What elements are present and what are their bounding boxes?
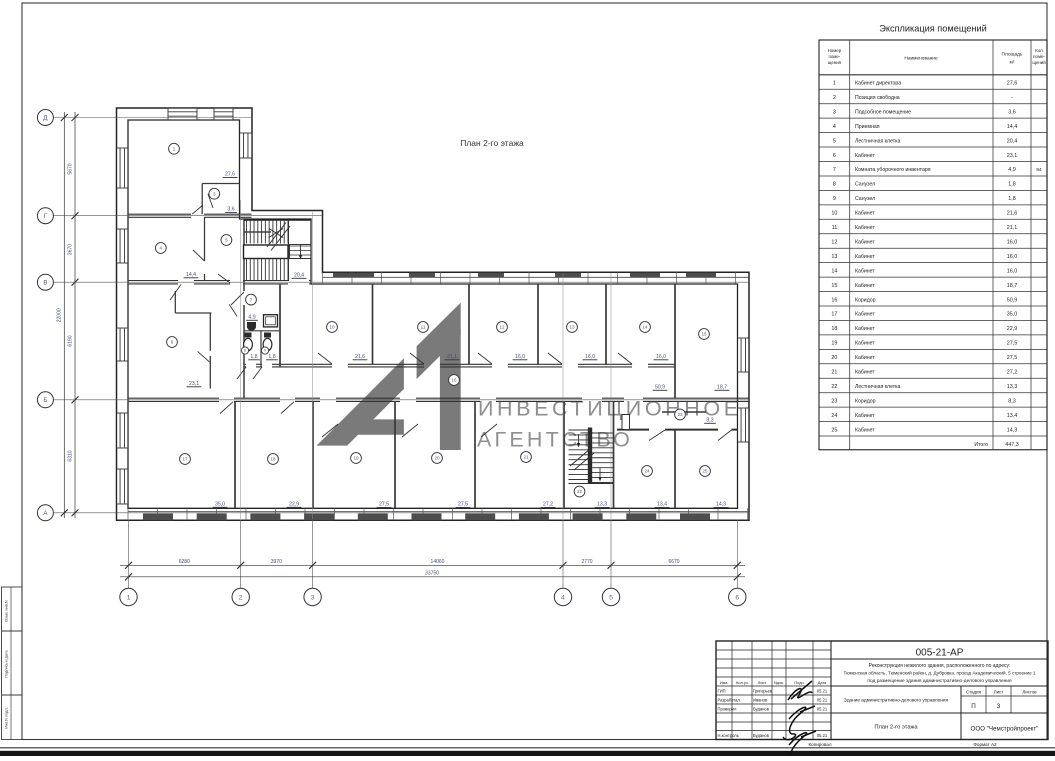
svg-text:Кол.уч: Кол.уч [736,680,748,685]
svg-text:1: 1 [833,81,836,87]
svg-text:3: 3 [833,109,836,115]
svg-text:447,3: 447,3 [1005,442,1019,448]
svg-text:20,4: 20,4 [1007,138,1018,144]
svg-text:Стадия: Стадия [966,689,982,694]
svg-text:3,6: 3,6 [227,207,234,213]
svg-text:13,3: 13,3 [597,502,607,508]
svg-text:6280: 6280 [179,559,190,565]
svg-text:Подп.: Подп. [794,680,804,685]
svg-text:Санузел: Санузел [855,196,875,202]
svg-text:05.21: 05.21 [817,707,828,712]
svg-text:84: 84 [1036,167,1042,173]
svg-text:14060: 14060 [431,559,445,565]
svg-text:12: 12 [831,239,837,245]
svg-text:14: 14 [831,268,837,274]
svg-text:9: 9 [264,349,266,353]
svg-text:6310: 6310 [67,450,73,461]
svg-text:Коридор: Коридор [855,398,876,404]
svg-text:Разработал: Разработал [718,698,741,703]
svg-text:Н.контроль: Н.контроль [718,733,739,738]
svg-text:Формат А2: Формат А2 [973,742,997,747]
svg-text:Санузел: Санузел [855,182,875,188]
svg-text:Изм.: Изм. [720,680,728,685]
svg-text:Наименование: Наименование [904,56,938,62]
svg-text:Копировал: Копировал [808,742,831,747]
svg-text:Кабинет: Кабинет [855,153,875,159]
svg-text:Позиция свободна: Позиция свободна [855,95,900,101]
svg-text:16,0: 16,0 [656,354,666,360]
svg-text:005-21-АР: 005-21-АР [916,648,964,659]
svg-text:35,0: 35,0 [1007,312,1018,318]
svg-text:19: 19 [831,341,837,347]
svg-text:Кол: Кол [1035,48,1043,53]
svg-text:6: 6 [833,153,836,159]
svg-text:Тюменская область, Тюменский р: Тюменская область, Тюменский район, д. Д… [843,670,1035,676]
svg-text:19: 19 [353,456,359,461]
svg-text:12: 12 [499,325,505,330]
svg-text:Площадь: Площадь [1002,52,1023,58]
svg-text:4,9: 4,9 [248,315,255,321]
svg-text:21,6: 21,6 [355,354,365,360]
svg-text:21,1: 21,1 [1007,225,1018,231]
svg-text:Кабинет: Кабинет [855,225,875,231]
svg-text:П: П [971,703,976,710]
svg-text:16,0: 16,0 [515,354,525,360]
svg-text:-: - [1011,95,1013,101]
svg-text:Номер: Номер [828,48,842,53]
svg-text:3: 3 [213,191,216,196]
svg-text:Кабинет: Кабинет [855,413,875,419]
svg-text:5: 5 [833,138,836,144]
svg-text:16,0: 16,0 [1007,254,1018,260]
svg-text:6: 6 [171,340,174,345]
svg-text:Листов: Листов [1022,689,1037,694]
svg-text:15: 15 [701,332,707,337]
svg-text:24: 24 [644,469,650,474]
svg-text:3970: 3970 [271,559,282,565]
svg-text:2: 2 [239,594,243,601]
svg-text:14,4: 14,4 [1007,124,1018,130]
svg-text:14,3: 14,3 [1007,427,1018,433]
svg-text:13: 13 [569,325,575,330]
svg-text:Иванов: Иванов [753,698,767,703]
svg-text:1: 1 [173,146,176,151]
svg-text:15: 15 [831,283,837,289]
svg-text:4: 4 [160,246,163,251]
svg-text:1,8: 1,8 [1008,182,1016,188]
svg-text:5: 5 [225,238,228,243]
svg-text:Кабинет директора: Кабинет директора [855,81,901,87]
svg-text:22,9: 22,9 [289,502,299,508]
svg-text:м²: м² [1010,60,1015,66]
svg-text:24: 24 [831,413,837,419]
svg-text:25: 25 [831,427,837,433]
svg-text:Проверил: Проверил [718,707,737,712]
svg-text:22: 22 [831,384,837,390]
svg-text:6190: 6190 [67,335,73,346]
svg-text:Кабинет: Кабинет [855,254,875,260]
svg-text:23,1: 23,1 [1007,153,1018,159]
svg-text:10: 10 [329,325,335,330]
svg-text:16: 16 [451,378,457,383]
svg-text:21,1: 21,1 [447,354,457,360]
svg-text:10: 10 [831,211,837,217]
svg-text:Итого: Итого [974,442,988,448]
svg-text:27,5: 27,5 [379,502,389,508]
svg-text:щения: щения [828,60,842,65]
svg-text:Кабинет: Кабинет [855,211,875,217]
svg-text:20: 20 [434,456,440,461]
svg-text:ООО "Чемстройпроект": ООО "Чемстройпроект" [971,726,1039,733]
svg-text:Подсобное помещение: Подсобное помещение [855,109,911,115]
svg-text:Комната уборочного инвентаря: Комната уборочного инвентаря [855,167,931,173]
svg-text:Подпись и дата: Подпись и дата [5,649,9,677]
svg-text:23: 23 [831,398,837,404]
svg-text:17: 17 [182,457,188,462]
svg-text:Кабинет: Кабинет [855,312,875,318]
svg-text:1,8: 1,8 [250,354,257,360]
svg-text:13,4: 13,4 [1007,413,1018,419]
svg-text:22,9: 22,9 [1007,326,1018,332]
svg-text:6670: 6670 [668,559,679,565]
svg-text:Буданов: Буданов [753,733,769,738]
svg-text:4: 4 [561,594,565,601]
svg-text:20: 20 [831,355,837,361]
svg-text:18: 18 [831,326,837,332]
svg-text:4: 4 [833,124,836,130]
svg-text:27,6: 27,6 [225,172,235,178]
svg-text:14,3: 14,3 [716,502,726,508]
svg-text:Кабинет: Кабинет [855,326,875,332]
svg-text:3: 3 [997,703,1001,710]
svg-text:Кабинет: Кабинет [855,355,875,361]
svg-text:22: 22 [577,489,583,494]
svg-text:18,7: 18,7 [717,385,727,391]
svg-text:Лист: Лист [994,689,1004,694]
svg-text:Кабинет: Кабинет [855,427,875,433]
svg-text:21,6: 21,6 [1007,211,1018,217]
svg-text:Кабинет: Кабинет [855,370,875,376]
svg-text:50,9: 50,9 [1007,297,1018,303]
svg-text:Григорьев: Григорьев [753,689,772,694]
svg-text:7: 7 [833,167,836,173]
svg-text:3670: 3670 [67,244,73,255]
svg-text:3,6: 3,6 [1008,109,1016,115]
svg-text:13: 13 [831,254,837,260]
svg-text:4,9: 4,9 [1008,167,1016,173]
svg-text:23,1: 23,1 [189,381,199,387]
svg-text:щений: щений [1032,60,1046,65]
svg-text:1,8: 1,8 [1008,196,1016,202]
svg-text:11: 11 [832,225,838,231]
svg-text:27,6: 27,6 [1007,81,1018,87]
svg-text:22000: 22000 [57,308,63,322]
svg-text:Экспликация помещений: Экспликация помещений [879,24,986,34]
svg-text:План 2-го этажа: План 2-го этажа [874,725,918,731]
svg-text:21: 21 [523,455,529,460]
svg-text:Б: Б [43,397,47,404]
svg-text:поме-: поме- [1033,54,1045,59]
svg-text:Коридор: Коридор [855,297,876,303]
svg-text:Nдок.: Nдок. [774,680,784,685]
svg-text:20,4: 20,4 [294,273,304,279]
svg-text:Приемная: Приемная [855,124,880,130]
svg-text:Буданов: Буданов [753,707,769,712]
svg-text:5670: 5670 [67,163,73,174]
svg-text:17: 17 [831,312,837,318]
svg-text:27,5: 27,5 [1007,355,1018,361]
svg-text:27,5: 27,5 [458,502,468,508]
svg-text:Кабинет: Кабинет [855,239,875,245]
svg-text:Кабинет: Кабинет [855,268,875,274]
svg-text:Инв.N подл.: Инв.N подл. [5,707,9,728]
svg-text:16,0: 16,0 [585,354,595,360]
svg-text:8: 8 [244,349,246,353]
svg-text:Лестничная клетка: Лестничная клетка [855,384,901,390]
svg-text:6: 6 [735,594,739,601]
svg-text:8: 8 [833,182,836,188]
svg-text:23: 23 [677,412,683,417]
svg-text:2: 2 [833,95,836,101]
svg-text:18,7: 18,7 [1007,283,1018,289]
svg-text:16,0: 16,0 [1007,268,1018,274]
svg-text:8,3: 8,3 [1008,398,1016,404]
svg-text:27,2: 27,2 [543,502,553,508]
svg-text:18: 18 [270,457,276,462]
svg-text:ГИП: ГИП [718,689,726,694]
svg-text:21: 21 [831,370,837,376]
svg-text:Лист: Лист [758,680,767,685]
svg-text:27,2: 27,2 [1007,370,1018,376]
svg-text:05.21: 05.21 [817,733,828,738]
svg-text:Лестничная клетка: Лестничная клетка [855,138,901,144]
svg-text:8,3: 8,3 [706,418,713,424]
svg-text:3: 3 [311,594,315,601]
svg-text:11: 11 [421,325,426,330]
svg-text:Дата: Дата [818,680,827,685]
svg-text:1: 1 [127,594,131,601]
svg-text:Взам. инв.N: Взам. инв.N [5,600,9,621]
svg-text:поме-: поме- [829,54,841,59]
svg-text:под размещение здания админист: под размещение здания административно-де… [867,679,1012,684]
svg-text:35,0: 35,0 [215,502,225,508]
svg-text:5: 5 [609,594,613,601]
svg-text:14,4: 14,4 [186,272,196,278]
svg-text:Кабинет: Кабинет [855,283,875,289]
svg-text:Кабинет: Кабинет [855,341,875,347]
svg-text:33750: 33750 [425,570,439,576]
svg-text:05.21: 05.21 [817,698,828,703]
svg-text:50,9: 50,9 [655,385,665,391]
svg-text:13,3: 13,3 [1007,384,1018,390]
svg-text:16: 16 [831,297,837,303]
svg-text:1,8: 1,8 [268,354,275,360]
svg-text:14: 14 [642,325,648,330]
svg-text:27,5: 27,5 [1007,341,1018,347]
svg-text:9: 9 [833,196,836,202]
svg-text:7: 7 [250,297,253,302]
svg-text:13,4: 13,4 [657,502,667,508]
svg-text:05.21: 05.21 [817,689,828,694]
svg-text:Здание административно-деловог: Здание административно-делового управлен… [844,698,948,703]
svg-text:В: В [43,279,47,286]
svg-text:16,0: 16,0 [1007,239,1018,245]
svg-text:25: 25 [702,469,708,474]
svg-text:2770: 2770 [581,559,592,565]
svg-text:Реконструкция нежилого здания,: Реконструкция нежилого здания, расположе… [869,663,1011,669]
svg-text:План 2-го этажа: План 2-го этажа [460,138,524,148]
